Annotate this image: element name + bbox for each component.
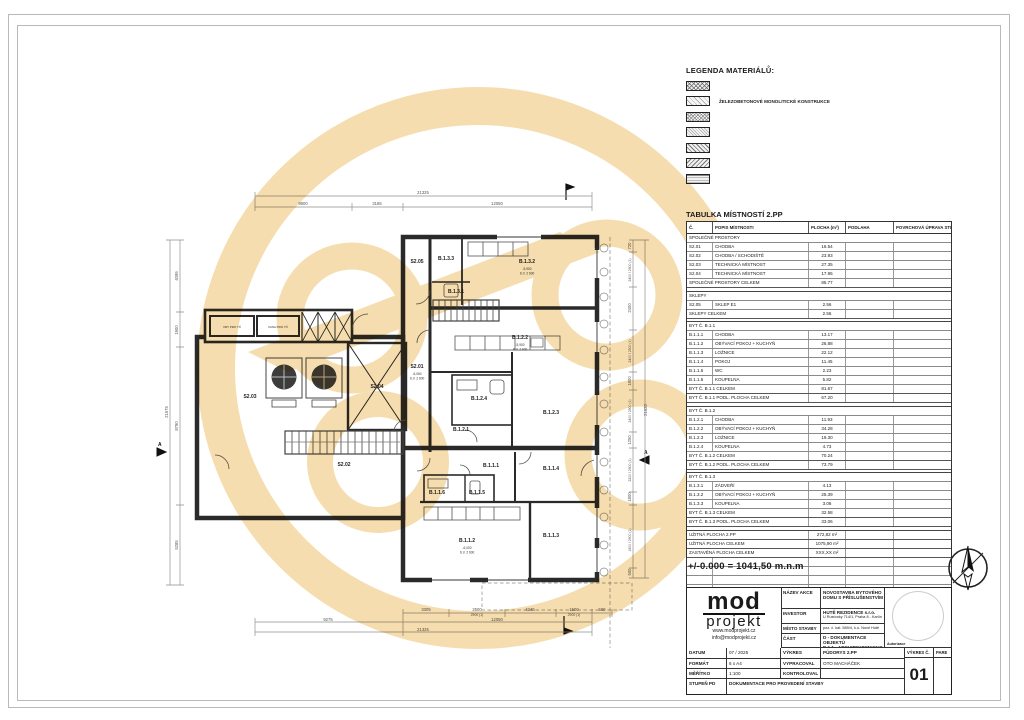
room-table: Č. POPIS MÍSTNOSTI PLOCHA (m²) PODLAHA P… bbox=[686, 221, 952, 604]
logo-text-mod: mod bbox=[703, 591, 765, 615]
hatch-swatch-icon bbox=[686, 174, 710, 184]
svg-text:B.1.2.1: B.1.2.1 bbox=[453, 427, 469, 433]
svg-text:12050: 12050 bbox=[491, 201, 503, 206]
svg-text:21325: 21325 bbox=[417, 190, 429, 195]
svg-text:B.1.3.3: B.1.3.3 bbox=[438, 256, 454, 262]
svg-text:S2.02: S2.02 bbox=[337, 462, 350, 468]
datum-value: 07 / 2025 bbox=[727, 648, 781, 659]
legend-item bbox=[686, 142, 946, 153]
misto-stavby-label: MÍSTO STAVBY bbox=[781, 624, 821, 634]
svg-text:S.V. 2 600: S.V. 2 600 bbox=[460, 551, 475, 555]
title-block: mod projekt www.modprojekt.cz info@modpr… bbox=[686, 587, 952, 695]
elevation-note: +/-0.000 = 1041,50 m.n.m bbox=[688, 561, 804, 572]
room-table-title: TABULKA MÍSTNOSTÍ 2.PP bbox=[686, 210, 783, 219]
company-logo: mod projekt www.modprojekt.cz info@modpr… bbox=[687, 588, 782, 648]
svg-text:21675: 21675 bbox=[164, 406, 169, 418]
svg-text:B.1.1.5: B.1.1.5 bbox=[469, 490, 485, 496]
hatch-swatch-icon bbox=[686, 158, 710, 168]
room-table-header: Č. POPIS MÍSTNOSTI PLOCHA (m²) PODLAHA P… bbox=[687, 222, 951, 234]
drawing-number: 01 bbox=[905, 658, 934, 694]
kontroloval-value bbox=[821, 669, 905, 679]
hatch-swatch-icon bbox=[686, 143, 710, 153]
svg-text:B.1.2.4: B.1.2.4 bbox=[471, 396, 487, 402]
table-row: BYT Č. B.1.1 CELKEM 81.67 bbox=[687, 385, 951, 394]
stamp-circle bbox=[892, 591, 944, 641]
svg-text:2200 / 2900 (1): 2200 / 2900 (1) bbox=[628, 459, 632, 482]
legend-item: ŽELEZOBETONOVÉ MONOLITICKÉ KONSTRUKCE bbox=[686, 96, 946, 107]
legend-item bbox=[686, 127, 946, 138]
stupen-pd-label: STUPEŇ PD bbox=[687, 679, 727, 694]
vypracoval-value: OTO MACHÁČEK bbox=[821, 659, 905, 669]
drawing-sheet: A A 21325 9800 3185 12050 3305 2500 2900… bbox=[0, 0, 1024, 720]
table-row: B.1.2.4 KOUPELNA 4.73 bbox=[687, 443, 951, 452]
svg-text:3185: 3185 bbox=[372, 201, 382, 206]
svg-text:1900: 1900 bbox=[174, 325, 179, 335]
table-row: S2.05 SKLEP E1 2.56 bbox=[687, 301, 951, 310]
section-label-right: A bbox=[644, 450, 648, 456]
table-row: SPOLEČNÉ PROSTORY CELKEM 85.77 bbox=[687, 279, 951, 288]
table-row: B.1.1.1 CHODBA 13.17 bbox=[687, 331, 951, 340]
table-row: B.1.2.3 LOŽNICE 19.30 bbox=[687, 434, 951, 443]
vykres-value: PŮDORYS 2.PP bbox=[821, 648, 905, 659]
svg-text:B.1.1.1: B.1.1.1 bbox=[483, 463, 499, 469]
svg-text:B.1.2.3: B.1.2.3 bbox=[543, 410, 559, 416]
svg-text:-6,060: -6,060 bbox=[412, 372, 421, 376]
svg-text:S.V. 2 600: S.V. 2 600 bbox=[410, 377, 425, 381]
kontroloval-label: KONTROLOVAL bbox=[781, 669, 821, 679]
table-row: B.1.1.3 LOŽNICE 22.12 bbox=[687, 349, 951, 358]
pare-label: PARE bbox=[934, 648, 952, 658]
room-table-body: SPOLEČNÉ PROSTORY S2.01 CHODBA 16.54 S2.… bbox=[687, 234, 951, 603]
svg-text:8790: 8790 bbox=[174, 421, 179, 431]
table-row: B.1.2.2 OBÝVACÍ POKOJ + KUCHYŇ 34.28 bbox=[687, 425, 951, 434]
investor-label: INVESTOR bbox=[781, 609, 821, 624]
meritko-value: 1:100 bbox=[727, 669, 781, 679]
svg-text:2400 / 2900 (1): 2400 / 2900 (1) bbox=[628, 259, 632, 282]
legend-item bbox=[686, 173, 946, 184]
table-row: BYT Č. B.1.3 CELKEM 32.58 bbox=[687, 509, 951, 518]
svg-text:-6,000: -6,000 bbox=[462, 546, 471, 550]
investor-value: HUTĚ REZIDENCE s.r.o. U Rustonky 714/1, … bbox=[821, 609, 885, 624]
table-row: BYT Č. B.1.1 bbox=[687, 322, 951, 331]
table-row: SPOLEČNÉ PROSTORY bbox=[687, 234, 951, 243]
legend-item bbox=[686, 80, 946, 91]
table-row: BYT Č. B.1.3 PODL. PLOCHA CELKEM 33.06 bbox=[687, 518, 951, 527]
table-row: B.1.1.6 KOUPELNA 5.82 bbox=[687, 376, 951, 385]
svg-text:1900 / 2900 (1): 1900 / 2900 (1) bbox=[628, 529, 632, 552]
table-row: B.1.3.2 OBÝVACÍ POKOJ + KUCHYŇ 25.39 bbox=[687, 491, 951, 500]
legend-item bbox=[686, 111, 946, 122]
table-row: B.1.1.4 POKOJ 11.45 bbox=[687, 358, 951, 367]
legend-title: LEGENDA MATERIÁLŮ: bbox=[686, 66, 946, 75]
table-row: S2.04 TECHNICKÁ MÍSTNOST 17.95 bbox=[687, 270, 951, 279]
svg-text:-5,900: -5,900 bbox=[515, 343, 524, 347]
cast-value: D - DOKUMENTACE OBJEKTŮ D.1.1 - ARCHITEK… bbox=[821, 634, 885, 648]
misto-stavby-value: poz. č. kat. 589/4, k.ú. Nové Hutě bbox=[821, 624, 885, 634]
logo-text-projekt: projekt bbox=[687, 615, 781, 628]
table-row: BYT Č. B.1.2 PODL. PLOCHA CELKEM 73.79 bbox=[687, 461, 951, 470]
format-value: 6 x A4 bbox=[727, 659, 781, 669]
company-email: info@modprojekt.cz bbox=[687, 635, 781, 642]
nazev-akce-value: NOVOSTAVBA BYTOVÉHO DOMU S PŘÍSLUŠENSTVÍ… bbox=[821, 588, 885, 609]
svg-text:S.V. 2 600: S.V. 2 600 bbox=[513, 348, 528, 352]
table-row: UŽITNÁ PLOCHA CELKEM 1075,90 m² bbox=[687, 540, 951, 549]
svg-text:4095: 4095 bbox=[174, 271, 179, 281]
svg-text:B.1.1.4: B.1.1.4 bbox=[543, 466, 559, 472]
authorization-stamp: Autorizace bbox=[885, 588, 952, 648]
table-row: B.1.1.2 OBÝVACÍ POKOJ + KUCHYŇ 26.88 bbox=[687, 340, 951, 349]
material-legend: LEGENDA MATERIÁLŮ: ŽELEZOBETONOVÉ MONOLI… bbox=[686, 66, 946, 184]
section-label-left: A bbox=[158, 442, 162, 448]
datum-label: DATUM bbox=[687, 648, 727, 659]
stupen-pd-value: DOKUMENTACE PRO PROVEDENÍ STAVBY bbox=[727, 679, 905, 694]
vypracoval-label: VYPRACOVAL bbox=[781, 659, 821, 669]
svg-text:B.1.2.2: B.1.2.2 bbox=[512, 335, 528, 341]
svg-text:S2.05: S2.05 bbox=[410, 259, 423, 265]
table-row: S2.03 TECHNICKÁ MÍSTNOST 27.35 bbox=[687, 261, 951, 270]
hatch-swatch-icon bbox=[686, 96, 710, 106]
meritko-label: MĚŘÍTKO bbox=[687, 669, 727, 679]
table-row: B.1.1.5 WC 2.23 bbox=[687, 367, 951, 376]
cast-label: ČÁST bbox=[781, 634, 821, 648]
table-row: BYT Č. B.1.1 PODL. PLOCHA CELKEM 67.20 bbox=[687, 394, 951, 403]
table-row: UŽITNÁ PLOCHA 2.PP 272,82 m² bbox=[687, 531, 951, 540]
autorizace-label: Autorizace bbox=[887, 642, 905, 646]
table-row: ZASTAVĚNÁ PLOCHA CELKEM XXX,XX m² bbox=[687, 549, 951, 558]
table-row: S2.01 CHODBA 16.54 bbox=[687, 243, 951, 252]
vykres-label: VÝKRES bbox=[781, 648, 821, 659]
pare-value bbox=[934, 658, 952, 694]
vykres-cislo-label: VÝKRES Č. bbox=[905, 648, 934, 658]
svg-text:S2.01: S2.01 bbox=[410, 364, 423, 370]
table-row: SKLEPY bbox=[687, 292, 951, 301]
format-label: FORMÁT bbox=[687, 659, 727, 669]
svg-text:1800: 1800 bbox=[627, 492, 632, 502]
svg-text:B.1.1.3: B.1.1.3 bbox=[543, 533, 559, 539]
table-row: BYT Č. B.1.2 CELKEM 70.24 bbox=[687, 452, 951, 461]
hatch-swatch-icon bbox=[686, 112, 710, 122]
table-row: S2.02 CHODBA / SCHODIŠTĚ 23.93 bbox=[687, 252, 951, 261]
table-row: BYT Č. B.1.3 bbox=[687, 473, 951, 482]
hatch-swatch-icon bbox=[686, 127, 710, 137]
table-row: B.1.3.1 ZÁDVEŘÍ 4.13 bbox=[687, 482, 951, 491]
svg-text:2400: 2400 bbox=[627, 303, 632, 313]
table-row: B.1.2.1 CHODBA 11.93 bbox=[687, 416, 951, 425]
nazev-akce-label: NÁZEV AKCE bbox=[781, 588, 821, 609]
svg-text:B.1.1.2: B.1.1.2 bbox=[459, 538, 475, 544]
table-row bbox=[687, 576, 951, 585]
svg-text:5285: 5285 bbox=[174, 540, 179, 550]
table-row: B.1.3.3 KOUPELNA 3.06 bbox=[687, 500, 951, 509]
table-row: BYT Č. B.1.2 bbox=[687, 407, 951, 416]
svg-text:1250: 1250 bbox=[627, 435, 632, 445]
legend-item bbox=[686, 158, 946, 169]
svg-text:9275: 9275 bbox=[323, 617, 333, 622]
svg-text:S2.03: S2.03 bbox=[243, 394, 256, 400]
table-row: SKLEPY CELKEM 2.56 bbox=[687, 310, 951, 319]
hatch-swatch-icon bbox=[686, 81, 710, 91]
